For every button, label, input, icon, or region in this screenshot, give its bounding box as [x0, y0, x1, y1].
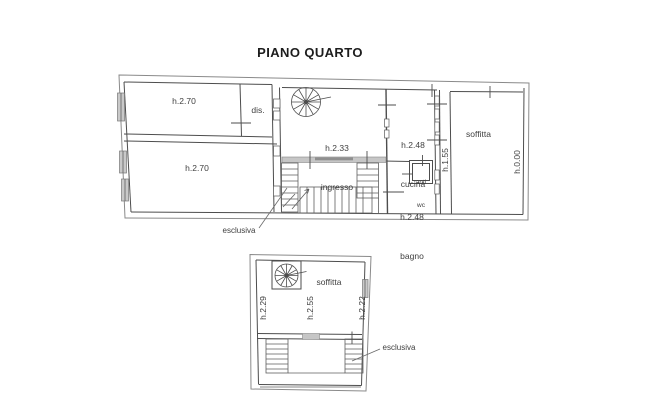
room-label-ingresso: h.2.33 ingresso	[307, 116, 367, 220]
spiral-stair-icon	[292, 88, 332, 117]
room-label-soffitta-lower: soffitta	[305, 277, 353, 287]
room-label-h270-top: h.2.70	[159, 96, 209, 106]
spiral-stair-icon-lower	[272, 261, 307, 289]
height-label-h155: h.1.55	[440, 140, 450, 180]
room-label-bagno: h.2.48 bagno	[384, 185, 440, 289]
height-label-h255: h.2.55	[305, 288, 315, 328]
leader-line-upper	[259, 188, 287, 228]
ingresso-name-label: ingresso	[307, 181, 367, 194]
annotation-esclusiva-upper: esclusiva	[206, 226, 272, 236]
annotation-esclusiva-lower: esclusiva	[368, 343, 430, 353]
room-label-dis: dis.	[241, 105, 275, 115]
bagno-name-label: bagno	[384, 250, 440, 263]
ingresso-height-label: h.2.33	[307, 142, 367, 155]
window-symbols	[118, 93, 129, 201]
threshold	[303, 334, 320, 340]
height-label-h229: h.2.29	[258, 288, 268, 328]
height-label-h000: h.0.00	[512, 142, 522, 182]
room-label-soffitta: soffitta	[451, 129, 506, 139]
lower-staircase	[260, 339, 363, 387]
plan-title: PIANO QUARTO	[225, 45, 395, 60]
height-label-h222: h.2.22	[357, 288, 367, 328]
floor-plan-page: PIANO QUARTO h.2.70 dis. h.2.70 h.2.33 i…	[0, 0, 650, 409]
cucina-height-label: h.2.48	[385, 139, 441, 152]
room-label-h270-bottom: h.2.70	[172, 163, 222, 173]
bagno-height-label: h.2.48	[384, 211, 440, 224]
